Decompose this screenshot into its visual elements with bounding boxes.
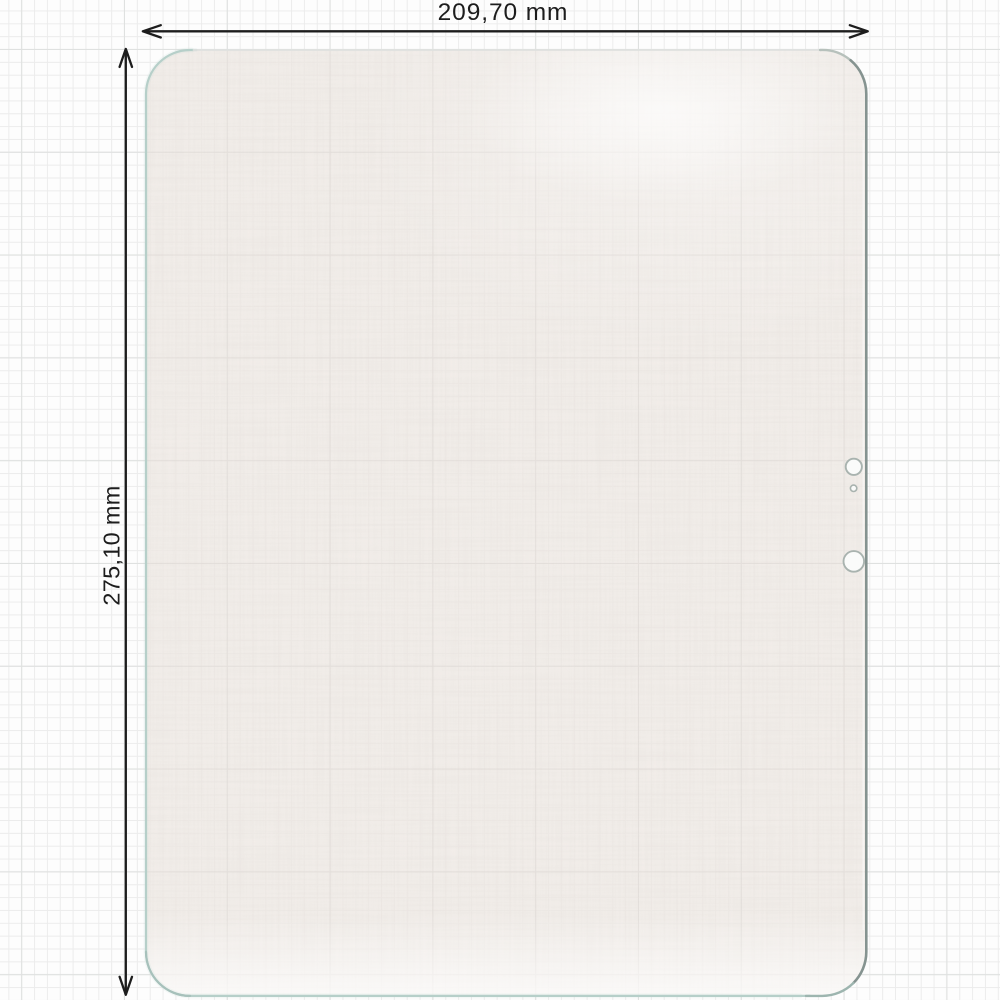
- svg-text:275,10 mm: 275,10 mm: [98, 485, 124, 605]
- svg-text:209,70 mm: 209,70 mm: [438, 0, 569, 26]
